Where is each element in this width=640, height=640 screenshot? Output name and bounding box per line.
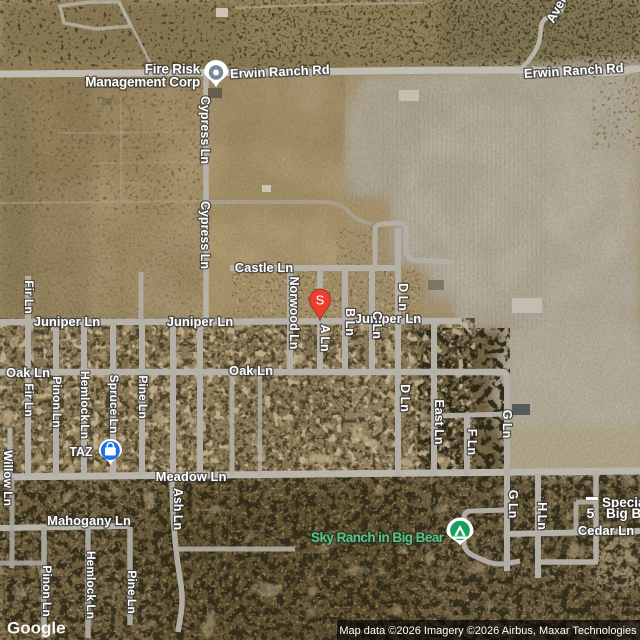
svg-text:East Ln: East Ln: [432, 399, 446, 444]
svg-text:G Ln: G Ln: [500, 410, 514, 438]
svg-text:Juniper Ln: Juniper Ln: [355, 311, 422, 326]
svg-text:Castle Ln: Castle Ln: [235, 260, 294, 275]
svg-text:Oak Ln: Oak Ln: [6, 365, 50, 380]
svg-text:Pinon Ln: Pinon Ln: [50, 376, 64, 427]
svg-text:Big B: Big B: [606, 506, 640, 521]
svg-text:Google: Google: [7, 619, 66, 638]
svg-text:Fir Ln: Fir Ln: [22, 280, 36, 313]
svg-text:Cypress Ln: Cypress Ln: [198, 201, 212, 269]
svg-text:H Ln: H Ln: [535, 502, 549, 530]
svg-text:Management Corp: Management Corp: [85, 75, 200, 90]
svg-text:TAZ: TAZ: [69, 445, 93, 459]
svg-text:Pinon Ln: Pinon Ln: [40, 565, 54, 616]
svg-text:D Ln: D Ln: [396, 283, 410, 311]
svg-text:S: S: [316, 293, 325, 308]
svg-text:Fir Ln: Fir Ln: [22, 383, 36, 416]
svg-text:F Ln: F Ln: [465, 429, 479, 455]
svg-text:B Ln: B Ln: [343, 308, 357, 336]
svg-text:5: 5: [587, 505, 595, 521]
svg-text:Cedar Ln: Cedar Ln: [578, 523, 634, 538]
svg-text:D Ln: D Ln: [398, 384, 412, 412]
svg-text:Norwood Ln: Norwood Ln: [287, 277, 301, 350]
svg-text:Pine Ln: Pine Ln: [136, 375, 150, 418]
svg-text:Pine Ln: Pine Ln: [125, 570, 139, 613]
svg-text:Cypress Ln: Cypress Ln: [198, 96, 212, 164]
svg-text:Willow Ln: Willow Ln: [1, 450, 15, 506]
svg-text:C Ln: C Ln: [370, 311, 384, 339]
svg-text:A Ln: A Ln: [318, 324, 332, 351]
svg-text:Juniper Ln: Juniper Ln: [34, 314, 101, 329]
svg-text:G Ln: G Ln: [506, 490, 520, 518]
svg-text:Ash Ln: Ash Ln: [171, 488, 185, 530]
svg-text:Sky Ranch in Big Bear: Sky Ranch in Big Bear: [311, 530, 445, 545]
svg-text:Map data ©2026 Imagery ©2026 A: Map data ©2026 Imagery ©2026 Airbus, Max…: [339, 625, 637, 637]
svg-text:Spruce Ln: Spruce Ln: [107, 375, 121, 434]
svg-text:Oak Ln: Oak Ln: [229, 363, 273, 378]
svg-text:Meadow Ln: Meadow Ln: [156, 469, 227, 484]
svg-text:Juniper Ln: Juniper Ln: [167, 314, 234, 329]
svg-text:Hemlock Ln: Hemlock Ln: [84, 551, 98, 619]
svg-text:Mahogany Ln: Mahogany Ln: [47, 513, 131, 528]
svg-text:Hemlock Ln: Hemlock Ln: [78, 371, 92, 439]
